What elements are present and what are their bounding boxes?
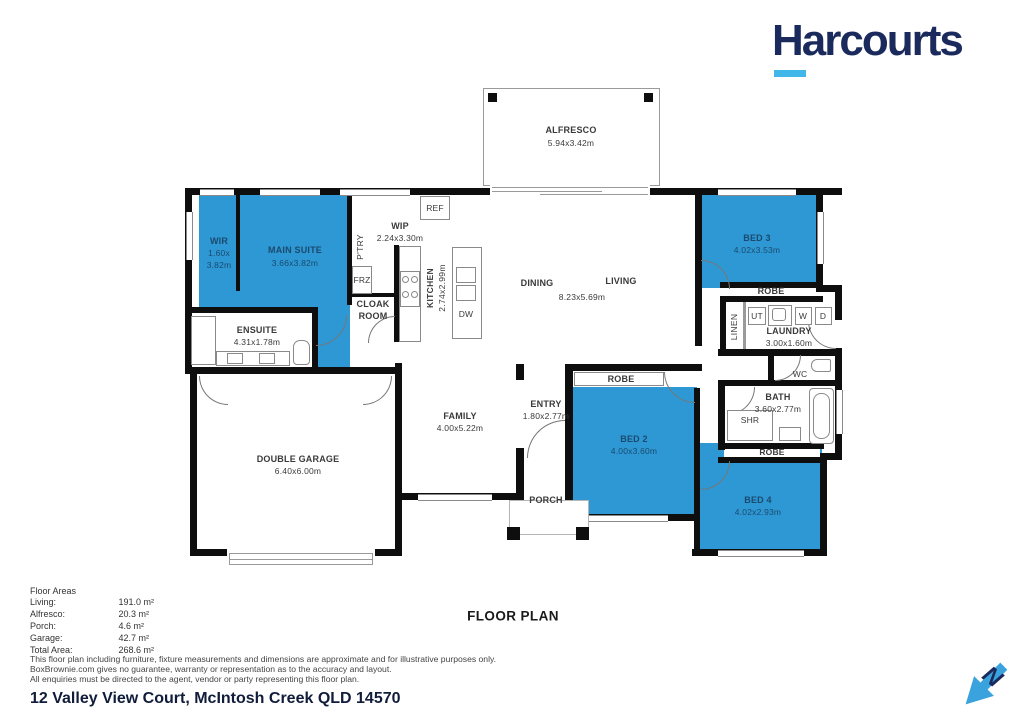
shower — [191, 316, 216, 365]
bed4-dims: 4.02x2.93m — [735, 507, 781, 517]
laundry-label: LAUNDRY — [766, 326, 811, 336]
harcourts-logo-underline — [774, 70, 806, 77]
bed3-label: BED 3 — [743, 233, 771, 243]
disclaimer-text: This floor plan including furniture, fix… — [30, 654, 496, 685]
wip-label: WIP — [391, 221, 409, 231]
wall — [565, 364, 573, 507]
bed2-label: BED 2 — [620, 434, 648, 444]
window — [340, 189, 410, 196]
cooktop-burner — [411, 291, 418, 298]
kitchen-dims: 2.74x2.99m — [437, 264, 447, 311]
sliding-door-line — [540, 194, 648, 195]
wir-dims: 1.60x — [208, 248, 230, 258]
window — [817, 212, 824, 264]
wall — [565, 364, 702, 371]
dining-living-dims: 8.23x5.69m — [559, 292, 605, 302]
living-label: LIVING — [605, 276, 636, 286]
wir-label: WIR — [210, 236, 228, 246]
family-label: FAMILY — [443, 411, 476, 421]
ensuite-label: ENSUITE — [237, 325, 277, 335]
wall — [820, 453, 827, 556]
window — [418, 494, 492, 501]
door-opening — [835, 320, 842, 348]
linen-label: LINEN — [729, 314, 739, 341]
linen-divider — [743, 302, 746, 349]
wir-dims: 3.82m — [207, 260, 232, 270]
wall — [190, 367, 395, 374]
laundry-dims: 3.00x1.60m — [766, 338, 812, 348]
floor-areas-block: Floor Areas Living: 191.0 m² Alfresco: 2… — [30, 586, 154, 657]
laundry-sink-bowl — [772, 308, 786, 321]
porch-label: PORCH — [529, 495, 563, 505]
toilet — [811, 359, 831, 372]
porch-post — [576, 527, 589, 540]
wall — [720, 296, 823, 302]
main-suite-dims: 3.66x3.82m — [272, 258, 318, 268]
kitchen-sink — [456, 285, 476, 301]
robe-bed2-label: ROBE — [608, 374, 635, 384]
shower-label: SHR — [741, 415, 760, 425]
freezer-label: FRZ — [353, 275, 370, 285]
garage-door-line — [229, 559, 373, 560]
entry-dims: 1.80x2.77m — [523, 411, 569, 421]
cooktop-burner — [402, 276, 409, 283]
wall — [395, 363, 402, 556]
garage-dims: 6.40x6.00m — [275, 466, 321, 476]
cloak-room-label: ROOM — [359, 311, 388, 321]
entry-label: ENTRY — [530, 399, 561, 409]
alfresco-post — [488, 93, 497, 102]
wall — [722, 380, 841, 386]
front-door-arc — [527, 420, 565, 458]
kitchen-sink — [456, 267, 476, 283]
sliding-door-line — [492, 187, 648, 188]
robe-bed3-label: ROBE — [758, 286, 785, 296]
wall — [236, 193, 240, 291]
bathtub-inner — [813, 393, 830, 439]
wall — [190, 367, 197, 556]
bed4-label: BED 4 — [744, 495, 772, 505]
wall — [516, 364, 524, 380]
wall — [718, 457, 824, 463]
pantry-label: P'TRY — [355, 234, 365, 260]
robe-bed4-label: ROBE — [759, 447, 784, 457]
fridge-label: REF — [426, 203, 444, 213]
wip-dims: 2.24x3.30m — [377, 233, 423, 243]
wall — [718, 380, 725, 450]
garage-door-arc — [363, 376, 392, 405]
dishwasher-label: DW — [459, 309, 474, 319]
porch-post — [507, 527, 520, 540]
page-title: FLOOR PLAN — [467, 609, 559, 624]
bath-label: BATH — [765, 392, 790, 402]
family-dims: 4.00x5.22m — [437, 423, 483, 433]
property-address: 12 Valley View Court, McIntosh Creek QLD… — [30, 690, 401, 708]
cooktop-burner — [402, 291, 409, 298]
tub-label: UT — [751, 311, 763, 321]
wall — [720, 296, 726, 356]
cloak-room-label: CLOAK — [357, 299, 390, 309]
floor-plan-page: Harcourts — [0, 0, 1024, 725]
floor-area-row: Alfresco: 20.3 m² — [30, 609, 154, 621]
cooktop-burner — [411, 276, 418, 283]
wall — [516, 448, 524, 507]
dryer-label: D — [820, 311, 826, 321]
window — [200, 189, 234, 196]
kitchen-label: KITCHEN — [425, 268, 435, 308]
basin — [779, 427, 801, 441]
floor-area-row: Garage: 42.7 m² — [30, 633, 154, 645]
alfresco-post — [644, 93, 653, 102]
alfresco-label: ALFRESCO — [545, 125, 596, 135]
toilet — [293, 340, 310, 365]
basin — [227, 353, 243, 364]
garage-label: DOUBLE GARAGE — [257, 454, 340, 464]
floor-areas-heading: Floor Areas — [30, 586, 154, 597]
north-compass-icon: N — [956, 650, 1012, 723]
dining-label: DINING — [521, 278, 554, 288]
garage-door-arc — [199, 376, 228, 405]
wall — [185, 307, 318, 313]
alfresco-dims: 5.94x3.42m — [548, 138, 594, 148]
floor-area-row: Porch: 4.6 m² — [30, 621, 154, 633]
window — [718, 189, 796, 196]
main-suite-label: MAIN SUITE — [268, 245, 322, 255]
window — [718, 550, 804, 557]
washer-label: W — [799, 311, 807, 321]
ensuite-dims: 4.31x1.78m — [234, 337, 280, 347]
wall — [694, 388, 700, 556]
window — [836, 390, 843, 434]
bath-dims: 3.60x2.77m — [755, 404, 801, 414]
floor-area-row: Living: 191.0 m² — [30, 597, 154, 609]
basin — [259, 353, 275, 364]
alfresco-outline — [483, 88, 660, 186]
bed2-dims: 4.00x3.60m — [611, 446, 657, 456]
wc-label: WC — [793, 369, 808, 379]
bed3-dims: 4.02x3.53m — [734, 245, 780, 255]
sliding-door-line — [492, 191, 602, 192]
window — [260, 189, 320, 196]
window — [186, 212, 193, 260]
harcourts-logo: Harcourts — [772, 16, 962, 66]
window — [588, 515, 668, 522]
